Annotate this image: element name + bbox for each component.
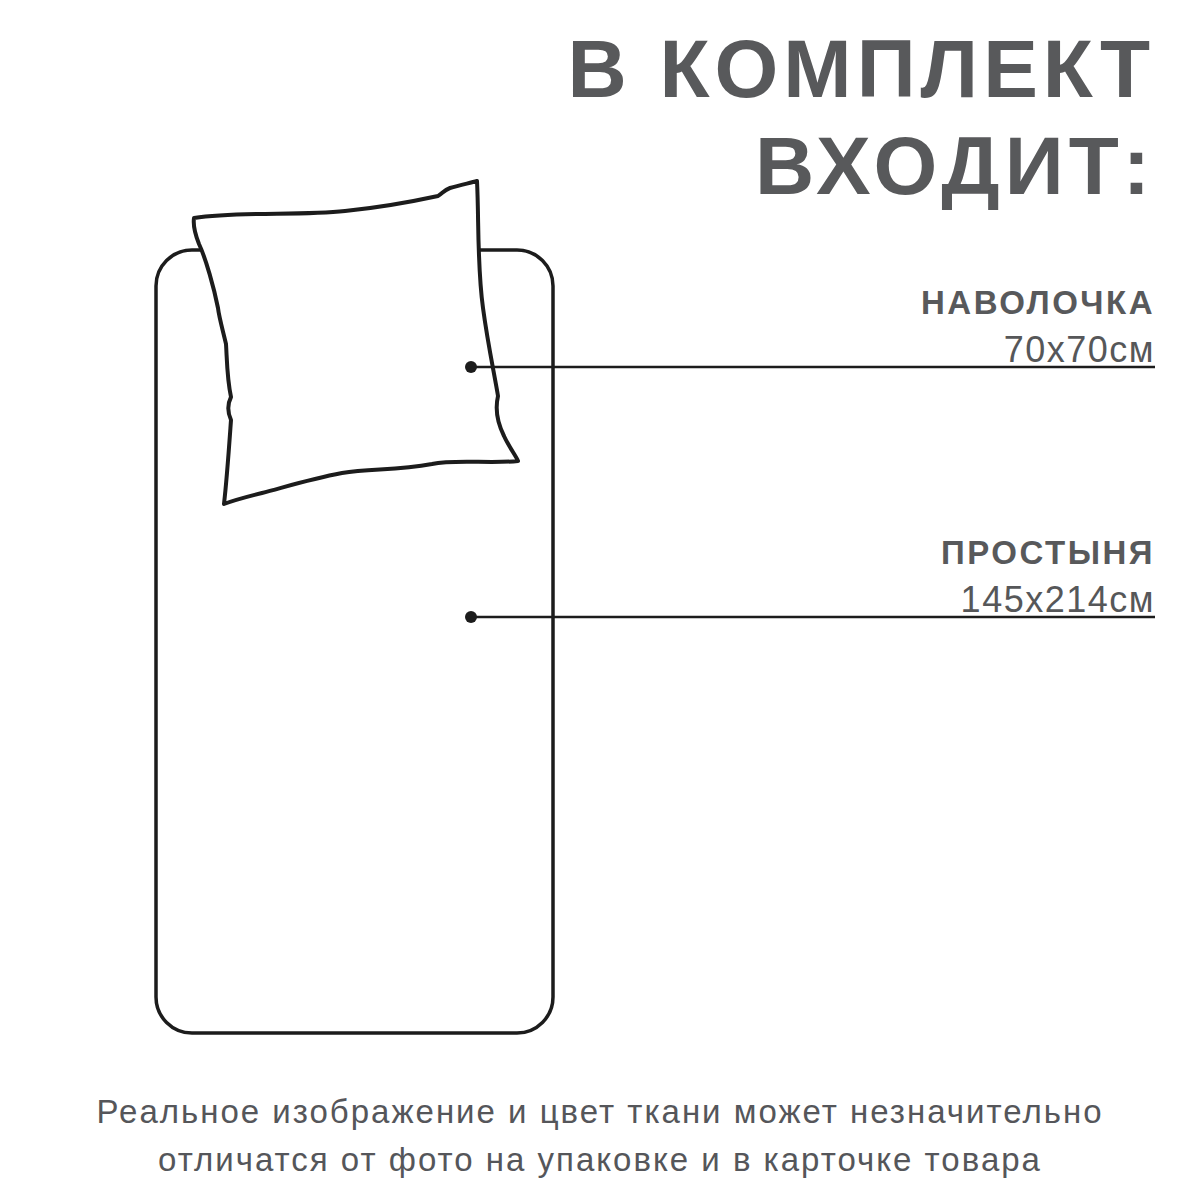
pillowcase-size: 70х70см	[921, 329, 1155, 371]
pillowcase-pointer-dot	[465, 361, 477, 373]
disclaimer-line1: Реальное изображение и цвет ткани может …	[0, 1088, 1200, 1136]
pillow-outline	[194, 181, 518, 504]
disclaimer-line2: отличатся от фото на упаковке и в карточ…	[0, 1136, 1200, 1184]
sheet-size: 145х214см	[941, 579, 1155, 621]
pillowcase-label: НАВОЛОЧКА 70х70см	[921, 284, 1155, 371]
sheet-label: ПРОСТЫНЯ 145х214см	[941, 534, 1155, 621]
infographic-page: В КОМПЛЕКТ ВХОДИТ: НАВОЛОЧКА 70х70см ПРО…	[0, 0, 1200, 1200]
sheet-name: ПРОСТЫНЯ	[941, 534, 1155, 572]
disclaimer-text: Реальное изображение и цвет ткани может …	[0, 1088, 1200, 1184]
sheet-pointer-dot	[465, 611, 477, 623]
pillowcase-name: НАВОЛОЧКА	[921, 284, 1155, 322]
